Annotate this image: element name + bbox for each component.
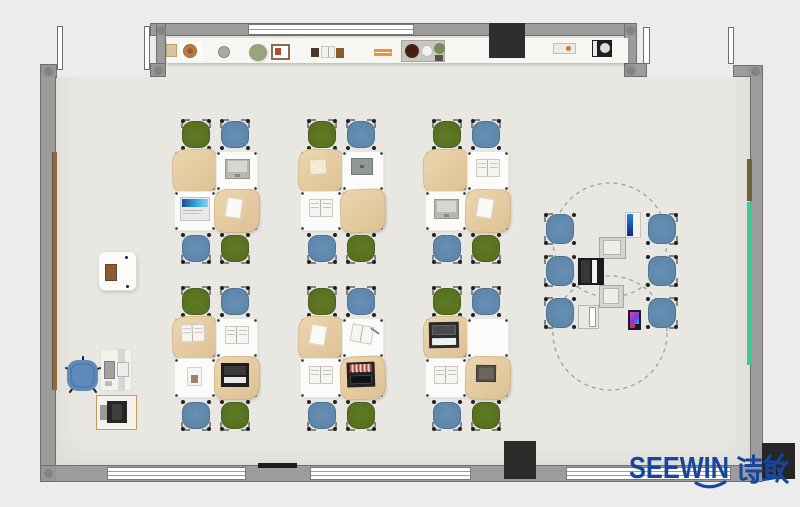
svg-text:SEEWIN: SEEWIN (629, 450, 729, 485)
